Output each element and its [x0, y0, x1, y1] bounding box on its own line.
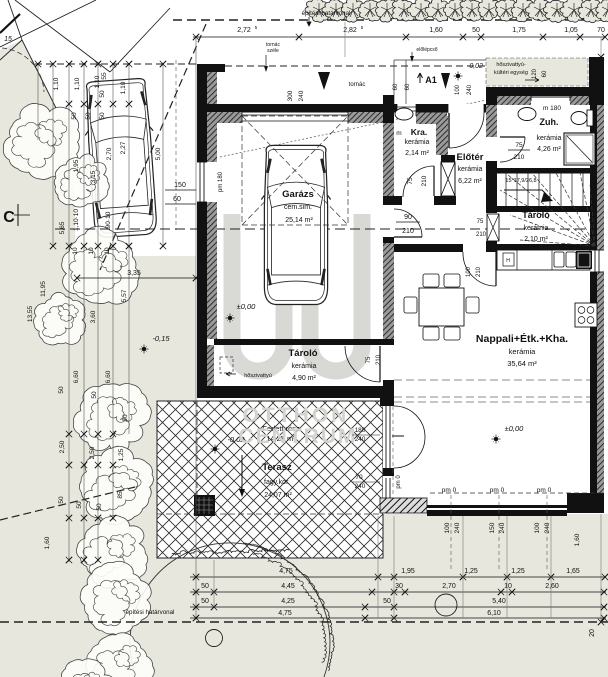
- svg-text:55: 55: [101, 72, 108, 80]
- svg-text:50: 50: [201, 583, 209, 590]
- svg-text:50: 50: [58, 386, 65, 394]
- svg-text:240: 240: [355, 483, 366, 490]
- svg-text:50: 50: [96, 503, 103, 511]
- svg-text:széle: széle: [267, 48, 279, 54]
- svg-text:75: 75: [477, 219, 484, 225]
- svg-text:50: 50: [76, 501, 83, 509]
- svg-text:2,27: 2,27: [120, 141, 127, 154]
- svg-text:70: 70: [355, 474, 363, 481]
- svg-text:Terasz: Terasz: [262, 462, 292, 473]
- svg-text:2,60: 2,60: [545, 583, 559, 590]
- svg-text:90: 90: [404, 214, 412, 221]
- svg-text:fagy.kor.: fagy.kor.: [264, 479, 290, 486]
- svg-text:30: 30: [395, 583, 403, 590]
- svg-text:kerámia: kerámia: [509, 347, 537, 356]
- svg-text:m: m: [396, 130, 401, 137]
- svg-text:hőszivattyú: hőszivattyú: [244, 373, 272, 379]
- svg-text:10: 10: [72, 247, 79, 255]
- svg-text:90: 90: [122, 414, 129, 422]
- svg-text:4,26 m²: 4,26 m²: [537, 146, 561, 153]
- svg-text:építési határvonal: építési határvonal: [302, 10, 351, 17]
- svg-text:240: 240: [454, 522, 461, 533]
- svg-text:5,40: 5,40: [492, 598, 506, 605]
- svg-text:3,35: 3,35: [127, 270, 141, 277]
- svg-text:6,22 m²: 6,22 m²: [458, 178, 482, 185]
- svg-text:A1: A1: [425, 75, 437, 85]
- svg-text:2,50: 2,50: [89, 446, 96, 459]
- svg-text:Tároló: Tároló: [522, 210, 550, 220]
- svg-text:13,55: 13,55: [27, 305, 34, 322]
- svg-text:50: 50: [99, 112, 106, 120]
- svg-text:kerámia: kerámia: [292, 363, 317, 370]
- svg-text:50: 50: [85, 112, 92, 120]
- svg-text:építési határvonal: építési határvonal: [126, 609, 175, 616]
- svg-text:m 180: m 180: [543, 105, 561, 112]
- svg-text:1,10: 1,10: [94, 75, 101, 88]
- svg-text:10: 10: [104, 247, 111, 255]
- svg-text:240: 240: [467, 84, 473, 95]
- svg-text:±0,00: ±0,00: [505, 424, 525, 433]
- svg-text:2,70: 2,70: [106, 147, 113, 160]
- svg-text:10: 10: [88, 247, 95, 255]
- svg-text:OTTHON: OTTHON: [243, 404, 350, 427]
- svg-text:210: 210: [402, 228, 414, 235]
- svg-text:6,60: 6,60: [105, 370, 112, 383]
- svg-text:kerámia: kerámia: [524, 225, 549, 232]
- svg-text:15: 15: [4, 36, 12, 43]
- svg-text:240: 240: [298, 90, 305, 101]
- svg-text:kültéri egység: kültéri egység: [494, 70, 528, 76]
- svg-text:pm 180: pm 180: [218, 171, 224, 192]
- svg-text:240: 240: [544, 522, 551, 533]
- svg-text:pm 0: pm 0: [442, 487, 457, 494]
- svg-text:85: 85: [117, 491, 124, 499]
- svg-text:50: 50: [99, 90, 106, 98]
- svg-text:2,10 m²: 2,10 m²: [524, 236, 548, 243]
- svg-text:kerámia: kerámia: [537, 135, 562, 142]
- svg-text:kerámia: kerámia: [458, 166, 483, 173]
- svg-text:1,10: 1,10: [53, 77, 60, 90]
- svg-text:CENTRUM: CENTRUM: [239, 425, 358, 448]
- svg-text:120: 120: [532, 68, 538, 79]
- svg-text:50: 50: [58, 496, 65, 504]
- svg-text:2,50: 2,50: [59, 440, 66, 453]
- svg-text:1,95: 1,95: [73, 159, 80, 172]
- svg-text:C: C: [3, 209, 15, 226]
- svg-text:Garázs: Garázs: [282, 189, 314, 200]
- svg-text:Tároló: Tároló: [288, 348, 317, 359]
- svg-text:50: 50: [383, 598, 391, 605]
- svg-text:hőszivattyú-: hőszivattyú-: [496, 62, 526, 68]
- svg-text:Előtér: Előtér: [457, 152, 484, 163]
- svg-text:4,75: 4,75: [279, 568, 293, 575]
- svg-text:300: 300: [287, 90, 294, 101]
- svg-text:210: 210: [421, 175, 428, 186]
- svg-text:3,60: 3,60: [90, 310, 97, 323]
- svg-text:20: 20: [589, 629, 596, 637]
- svg-text:pm 0: pm 0: [396, 475, 402, 489]
- svg-text:-0,02: -0,02: [467, 63, 483, 70]
- svg-text:Nappali+Étk.+Kha.: Nappali+Étk.+Kha.: [476, 332, 568, 345]
- svg-text:90·10: 90·10: [105, 211, 112, 228]
- svg-text:60: 60: [405, 83, 411, 90]
- svg-text:±0,00: ±0,00: [237, 302, 257, 311]
- svg-text:4,90 m²: 4,90 m²: [292, 375, 316, 382]
- svg-text:5,57: 5,57: [121, 289, 128, 302]
- svg-text:50: 50: [71, 112, 78, 120]
- svg-text:25,14 m²: 25,14 m²: [285, 217, 313, 224]
- svg-text:100: 100: [534, 522, 541, 533]
- svg-text:11,95: 11,95: [40, 281, 47, 297]
- svg-text:Zuh.: Zuh.: [540, 117, 559, 127]
- svg-text:1,60: 1,60: [574, 533, 581, 546]
- svg-text:100: 100: [444, 522, 451, 533]
- svg-text:10: 10: [504, 583, 512, 590]
- svg-text:100: 100: [455, 84, 461, 95]
- svg-text:60: 60: [173, 196, 181, 203]
- svg-text:150: 150: [489, 522, 496, 533]
- svg-text:60: 60: [542, 70, 548, 77]
- svg-text:15*17,9/26,8: 15*17,9/26,8: [505, 178, 536, 184]
- svg-text:1,05: 1,05: [564, 27, 578, 34]
- svg-text:1,25: 1,25: [464, 568, 478, 575]
- svg-text:1,25: 1,25: [118, 448, 125, 461]
- svg-text:2,72: 2,72: [237, 27, 251, 34]
- svg-text:2,14 m²: 2,14 m²: [405, 150, 429, 157]
- svg-text:pm 0: pm 0: [490, 487, 505, 494]
- svg-text:1,25: 1,25: [511, 568, 525, 575]
- svg-text:1,75: 1,75: [512, 27, 526, 34]
- svg-text:1,95: 1,95: [401, 568, 415, 575]
- svg-text:1,60: 1,60: [44, 536, 51, 549]
- svg-text:210: 210: [514, 154, 525, 161]
- svg-text:70: 70: [597, 27, 605, 34]
- svg-text:180: 180: [355, 427, 366, 434]
- svg-text:24,07 m²: 24,07 m²: [264, 492, 292, 499]
- svg-text:4,75: 4,75: [278, 610, 292, 617]
- svg-text:3,15: 3,15: [90, 170, 97, 183]
- svg-text:60: 60: [393, 83, 399, 90]
- svg-text:2,70: 2,70: [442, 583, 456, 590]
- svg-text:75: 75: [366, 356, 372, 363]
- svg-text:Kra.: Kra.: [411, 127, 428, 137]
- svg-text:1,10: 1,10: [120, 81, 127, 94]
- svg-text:210: 210: [376, 354, 382, 365]
- svg-text:150: 150: [174, 182, 186, 189]
- svg-text:240: 240: [499, 522, 506, 533]
- svg-text:tornác: tornác: [349, 82, 366, 88]
- svg-text:100: 100: [466, 266, 472, 277]
- svg-text:4,25: 4,25: [281, 598, 295, 605]
- svg-text:6,60: 6,60: [73, 370, 80, 383]
- svg-text:5,65: 5,65: [59, 221, 66, 234]
- svg-text:5,00: 5,00: [155, 147, 162, 160]
- svg-text:H: H: [506, 258, 510, 264]
- svg-text:1,10·10: 1,10·10: [73, 209, 80, 231]
- svg-text:kerámia: kerámia: [405, 139, 430, 146]
- svg-text:75: 75: [407, 177, 414, 185]
- svg-text:1,65: 1,65: [566, 568, 580, 575]
- svg-text:cem.sim.: cem.sim.: [284, 204, 312, 211]
- svg-text:-0,15: -0,15: [152, 334, 170, 343]
- svg-text:75: 75: [515, 142, 523, 149]
- svg-text:1,60: 1,60: [429, 27, 443, 34]
- svg-text:50: 50: [201, 598, 209, 605]
- svg-text:6,10: 6,10: [487, 610, 501, 617]
- svg-text:50: 50: [472, 27, 480, 34]
- svg-text:210: 210: [476, 232, 487, 238]
- svg-text:4,45: 4,45: [281, 583, 295, 590]
- svg-text:előlépcső: előlépcső: [416, 47, 437, 53]
- svg-text:pm 0: pm 0: [537, 487, 552, 494]
- svg-text:50: 50: [91, 391, 98, 399]
- svg-text:35,64 m²: 35,64 m²: [507, 359, 537, 368]
- svg-text:240: 240: [355, 436, 366, 443]
- svg-text:210: 210: [476, 266, 482, 277]
- svg-text:1,10: 1,10: [74, 77, 81, 90]
